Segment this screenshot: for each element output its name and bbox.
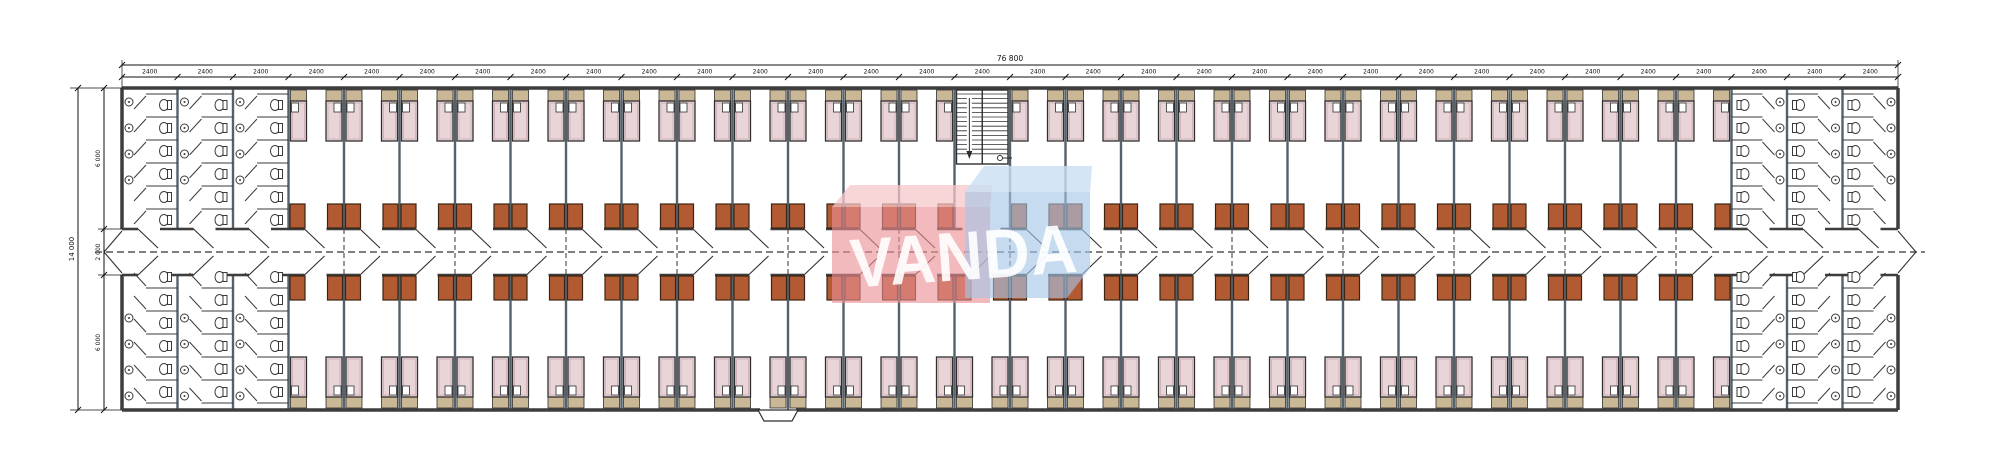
basin-dot [184,317,186,319]
wardrobe-icon [1678,204,1693,228]
basin-dot [1890,395,1892,397]
bay-width-label: 2400 [420,69,435,76]
wardrobe-icon [1123,276,1138,300]
bed-pillow [1124,103,1131,112]
bed-pillow [1568,386,1575,395]
bed-pillow [1513,103,1520,112]
toilet-tank [1848,147,1852,156]
toilet-tank [279,296,283,305]
bed-icon [548,90,564,141]
bed-pillow [680,103,687,112]
stall-door-swing-icon [1763,188,1775,201]
bed-pillow [1278,386,1285,395]
bed-headboard [1658,397,1674,408]
bed-headboard [402,90,418,101]
basin-dot [128,317,130,319]
bed-headboard [326,397,342,408]
basin-dot [1890,179,1892,181]
bed-pillow [1180,386,1187,395]
wardrobe-icon [1604,204,1619,228]
bed-icon [568,357,584,408]
washroom-bay [236,94,289,403]
stall-door-swing-icon [245,296,257,309]
basin-dot [1835,343,1837,345]
door-swing-icon [582,256,602,275]
door-swing-icon [1748,256,1768,275]
door-swing-icon [138,229,158,248]
basin-dot [239,369,241,371]
bed-icon [382,357,398,408]
basin-dot [239,395,241,397]
bed-pillow [1069,386,1076,395]
bed-headboard [1547,397,1563,408]
stall-door-swing-icon [190,142,202,155]
bed-icon [1603,90,1619,141]
wardrobe-icon [1678,276,1693,300]
basin-dot [1835,317,1837,319]
wardrobe-icon [1289,204,1304,228]
stall-door-swing-icon [190,365,202,378]
bed-pillow [1722,386,1729,395]
wardrobe-icon [1622,276,1637,300]
stall-door-swing-icon [190,119,202,132]
stall-door-swing-icon [1874,96,1886,109]
basin-dot [1890,101,1892,103]
toilet-tank [1793,147,1797,156]
bay-width-label: 2400 [1752,69,1767,76]
bed-pillow [1444,103,1451,112]
bed-headboard [659,397,675,408]
entrance-steps [758,410,798,421]
door-swing-icon [138,256,158,275]
bed-headboard [679,397,695,408]
basin-dot [1779,101,1781,103]
bed-pillow [1222,103,1229,112]
bed-icon [291,357,307,408]
toilet-tank [1848,216,1852,225]
basin-dot [1835,127,1837,129]
wardrobe-icon [1327,276,1342,300]
door-swing-icon [527,256,547,275]
wardrobe-icon [457,204,472,228]
bed-icon [513,90,529,141]
stall-door-swing-icon [1763,365,1775,378]
stall-door-swing-icon [1874,211,1886,224]
bed-headboard [901,90,917,101]
bay-width-label: 2400 [919,69,934,76]
toilet-tank [1737,365,1741,374]
bed-icon [402,90,418,141]
door-swing-icon [527,229,547,248]
wardrobe-icon [1234,204,1249,228]
bed-icon [604,90,620,141]
bed-pillow [1235,103,1242,112]
toilet-tank [1793,388,1797,397]
bed-pillow [1000,386,1007,395]
basin-dot [184,127,186,129]
wardrobe-icon [1567,204,1582,228]
bed-icon [1012,90,1028,141]
bed-icon [826,90,842,141]
bed-icon [1159,90,1175,141]
bed-headboard [901,397,917,408]
bed-headboard [1214,397,1230,408]
bed-pillow [1666,103,1673,112]
wardrobe-icon [1715,204,1730,228]
bed-pillow [1500,103,1507,112]
door-swing-icon [1692,256,1712,275]
bed-icon [1214,90,1230,141]
wardrobe-icon [1604,276,1619,300]
bed-headboard [659,90,675,101]
wardrobe-icon [1327,204,1342,228]
stall-door-swing-icon [1818,388,1830,401]
end-door-swing-icon [104,231,122,252]
wardrobe-icon [1622,204,1637,228]
stall-door-swing-icon [1763,211,1775,224]
toilet-tank [168,170,172,179]
basin-dot [1835,153,1837,155]
wardrobe-icon [1178,276,1193,300]
bay-width-label: 2400 [864,69,879,76]
bed-icon [402,357,418,408]
bed-icon [881,357,897,408]
bed-headboard [1068,397,1084,408]
bed-icon [1048,357,1064,408]
bed-headboard [624,397,640,408]
bed-icon [457,357,473,408]
bed-icon [881,90,897,141]
bed-icon [1234,90,1250,141]
bed-headboard [382,397,398,408]
wardrobe-icon [494,276,509,300]
bed-icon [1623,90,1639,141]
bed-icon [291,90,307,141]
bed-headboard [770,397,786,408]
wardrobe-icon [1549,204,1564,228]
basin-dot [1835,369,1837,371]
bed-icon [1345,90,1361,141]
bed-pillow [902,386,909,395]
basin-dot [1890,153,1892,155]
watermark-blue-top-face [965,166,1092,192]
wardrobe-icon [1123,204,1138,228]
bed-headboard [1290,90,1306,101]
wardrobe-icon [1438,276,1453,300]
bed-pillow [1555,103,1562,112]
wardrobe-icon [1216,276,1231,300]
door-swing-icon [1193,229,1213,248]
bay-width-label: 2400 [1585,69,1600,76]
bed-headboard [846,397,862,408]
toilet-tank [1848,365,1852,374]
bed-pillow [723,103,730,112]
wardrobe-icon [1438,204,1453,228]
toilet-tank [279,273,283,282]
bed-icon [513,357,529,408]
bay-width-label: 2400 [808,69,823,76]
bed-headboard [1492,397,1508,408]
toilet-tank [223,101,227,110]
bed-headboard [1492,90,1508,101]
toilet-tank [1737,124,1741,133]
stall-door-swing-icon [1874,188,1886,201]
bed-headboard [846,90,862,101]
stall-door-swing-icon [1763,96,1775,109]
door-swing-icon [471,229,491,248]
bed-pillow [1402,386,1409,395]
bed-headboard [1325,397,1341,408]
bed-pillow [1167,103,1174,112]
bed-headboard [1567,397,1583,408]
door-swing-icon [1637,256,1657,275]
toilet-tank [1793,342,1797,351]
bay-width-label: 2400 [1363,69,1378,76]
stall-door-swing-icon [245,319,257,332]
bed-icon [624,357,640,408]
bed-pillow [556,386,563,395]
bed-icon [437,90,453,141]
basin-dot [128,153,130,155]
bed-icon [735,357,751,408]
bed-headboard [1048,397,1064,408]
stall-door-swing-icon [1763,319,1775,332]
bed-headboard [881,397,897,408]
basin-dot [1779,317,1781,319]
stall-door-swing-icon [134,142,146,155]
bed-pillow [847,386,854,395]
wardrobe-icon [1105,276,1120,300]
bed-headboard [513,90,529,101]
bed-icon [735,90,751,141]
bed-icon [493,90,509,141]
wardrobe-icon [290,204,305,228]
bed-pillow [834,103,841,112]
door-swing-icon [1748,229,1768,248]
bed-headboard [1234,90,1250,101]
bed-icon [1179,357,1195,408]
height-segment-label: 2 000 [95,243,102,260]
bed-headboard [1270,90,1286,101]
bed-pillow [1568,103,1575,112]
bed-headboard [1623,90,1639,101]
door-swing-icon [638,229,658,248]
bed-icon [679,357,695,408]
bed-pillow [834,386,841,395]
bed-icon [1290,90,1306,141]
bed-icon [1068,90,1084,141]
toilet-tank [168,216,172,225]
stall-door-swing-icon [1874,165,1886,178]
bed-headboard [604,90,620,101]
bay-width-label: 2400 [142,69,157,76]
wardrobe-icon [1493,204,1508,228]
bed-pillow [612,103,619,112]
wardrobe-icon [1456,276,1471,300]
door-swing-icon [1581,229,1601,248]
stall-door-swing-icon [245,188,257,201]
bed-icon [1270,90,1286,141]
bed-pillow [569,386,576,395]
bed-pillow [902,103,909,112]
wardrobe-icon [328,276,343,300]
bay-width-label: 2400 [697,69,712,76]
door-swing-icon [1859,229,1879,248]
bed-pillow [1513,386,1520,395]
bay-width-label: 2400 [1530,69,1545,76]
stall-door-swing-icon [1874,365,1886,378]
total-height-label: 14 000 [68,237,76,262]
wardrobe-icon [1345,204,1360,228]
door-swing-icon [305,256,325,275]
bed-headboard [957,397,973,408]
bed-pillow [1666,386,1673,395]
stall-door-swing-icon [1874,388,1886,401]
bed-headboard [1401,90,1417,101]
bay-width-label: 2400 [1696,69,1711,76]
bed-pillow [1611,103,1618,112]
bed-headboard [1325,90,1341,101]
bed-pillow [514,103,521,112]
door-swing-icon [194,229,214,248]
wardrobe-icon [346,204,361,228]
wardrobe-icon [328,204,343,228]
wardrobe-icon [1715,276,1730,300]
toilet-tank [279,365,283,374]
basin-dot [184,369,186,371]
stall-door-swing-icon [245,119,257,132]
bed-headboard [1714,397,1730,408]
basin-dot [1779,343,1781,345]
wardrobe-icon [772,276,787,300]
bed-pillow [390,386,397,395]
toilet-tank [168,147,172,156]
bed-pillow [945,103,952,112]
bed-icon [1436,357,1452,408]
wardrobe-icon [439,276,454,300]
bed-headboard [1012,90,1028,101]
door-swing-icon [249,229,269,248]
stall-door-swing-icon [1818,211,1830,224]
toilet-tank [168,124,172,133]
toilet-tank [1737,296,1741,305]
door-swing-icon [804,256,824,275]
bed-pillow [347,386,354,395]
toilet-tank [223,365,227,374]
wardrobe-icon [1400,276,1415,300]
bed-pillow [1222,386,1229,395]
bed-headboard [402,397,418,408]
basin-dot [184,395,186,397]
toilet-tank [1793,319,1797,328]
wardrobe-icon [494,204,509,228]
toilet-tank [1793,124,1797,133]
toilet-tank [1848,388,1852,397]
bed-pillow [556,103,563,112]
basin-dot [184,179,186,181]
door-swing-icon [1803,229,1823,248]
wardrobe-icon [1511,276,1526,300]
bed-icon [770,90,786,141]
stall-door-swing-icon [134,342,146,355]
toilet-tank [1848,296,1852,305]
bed-pillow [347,103,354,112]
stall-door-swing-icon [245,342,257,355]
bed-icon [992,357,1008,408]
toilet-tank [1737,388,1741,397]
bed-icon [346,90,362,141]
bed-pillow [1444,386,1451,395]
bed-icon [1159,357,1175,408]
stall-door-swing-icon [134,319,146,332]
stall-door-swing-icon [1818,342,1830,355]
bed-headboard [346,397,362,408]
door-swing-icon [1803,256,1823,275]
bed-pillow [1679,103,1686,112]
bed-icon [1068,357,1084,408]
bay-width-label: 2400 [253,69,268,76]
bed-pillow [1235,386,1242,395]
bed-icon [715,90,731,141]
wardrobe-icon [1511,204,1526,228]
basin-dot [184,153,186,155]
stall-door-swing-icon [1874,342,1886,355]
stall-door-swing-icon [190,319,202,332]
wardrobe-icon [457,276,472,300]
bed-headboard [1623,397,1639,408]
bed-headboard [1603,397,1619,408]
toilet-tank [1737,147,1741,156]
bed-pillow [736,386,743,395]
bed-icon [770,357,786,408]
bay-width-label: 2400 [1863,69,1878,76]
bed-icon [937,357,953,408]
bed-headboard [1512,397,1528,408]
bed-headboard [735,397,751,408]
bed-headboard [493,90,509,101]
wardrobe-icon [1660,276,1675,300]
stall-door-swing-icon [1874,319,1886,332]
basin-dot [239,179,241,181]
door-swing-icon [1470,256,1490,275]
door-swing-icon [1637,229,1657,248]
stall-door-swing-icon [1818,188,1830,201]
toilet-tank [223,388,227,397]
bed-icon [1547,357,1563,408]
toilet-tank [168,101,172,110]
bed-icon [1658,357,1674,408]
toilet-tank [223,342,227,351]
bed-pillow [334,386,341,395]
bed-icon [1678,90,1694,141]
basin-dot [128,101,130,103]
bed-icon [1658,90,1674,141]
stall-door-swing-icon [1763,273,1775,286]
bed-headboard [679,90,695,101]
bay-width-label: 2400 [975,69,990,76]
toilet-tank [223,296,227,305]
bed-headboard [715,90,731,101]
bay-width-label: 2400 [1474,69,1489,76]
bay-width-label: 2400 [1030,69,1045,76]
basin-dot [128,179,130,181]
door-swing-icon [1859,256,1879,275]
bed-icon [624,90,640,141]
bed-pillow [1111,103,1118,112]
bed-headboard [1512,90,1528,101]
bed-headboard [1179,397,1195,408]
bay-width-label: 2400 [642,69,657,76]
